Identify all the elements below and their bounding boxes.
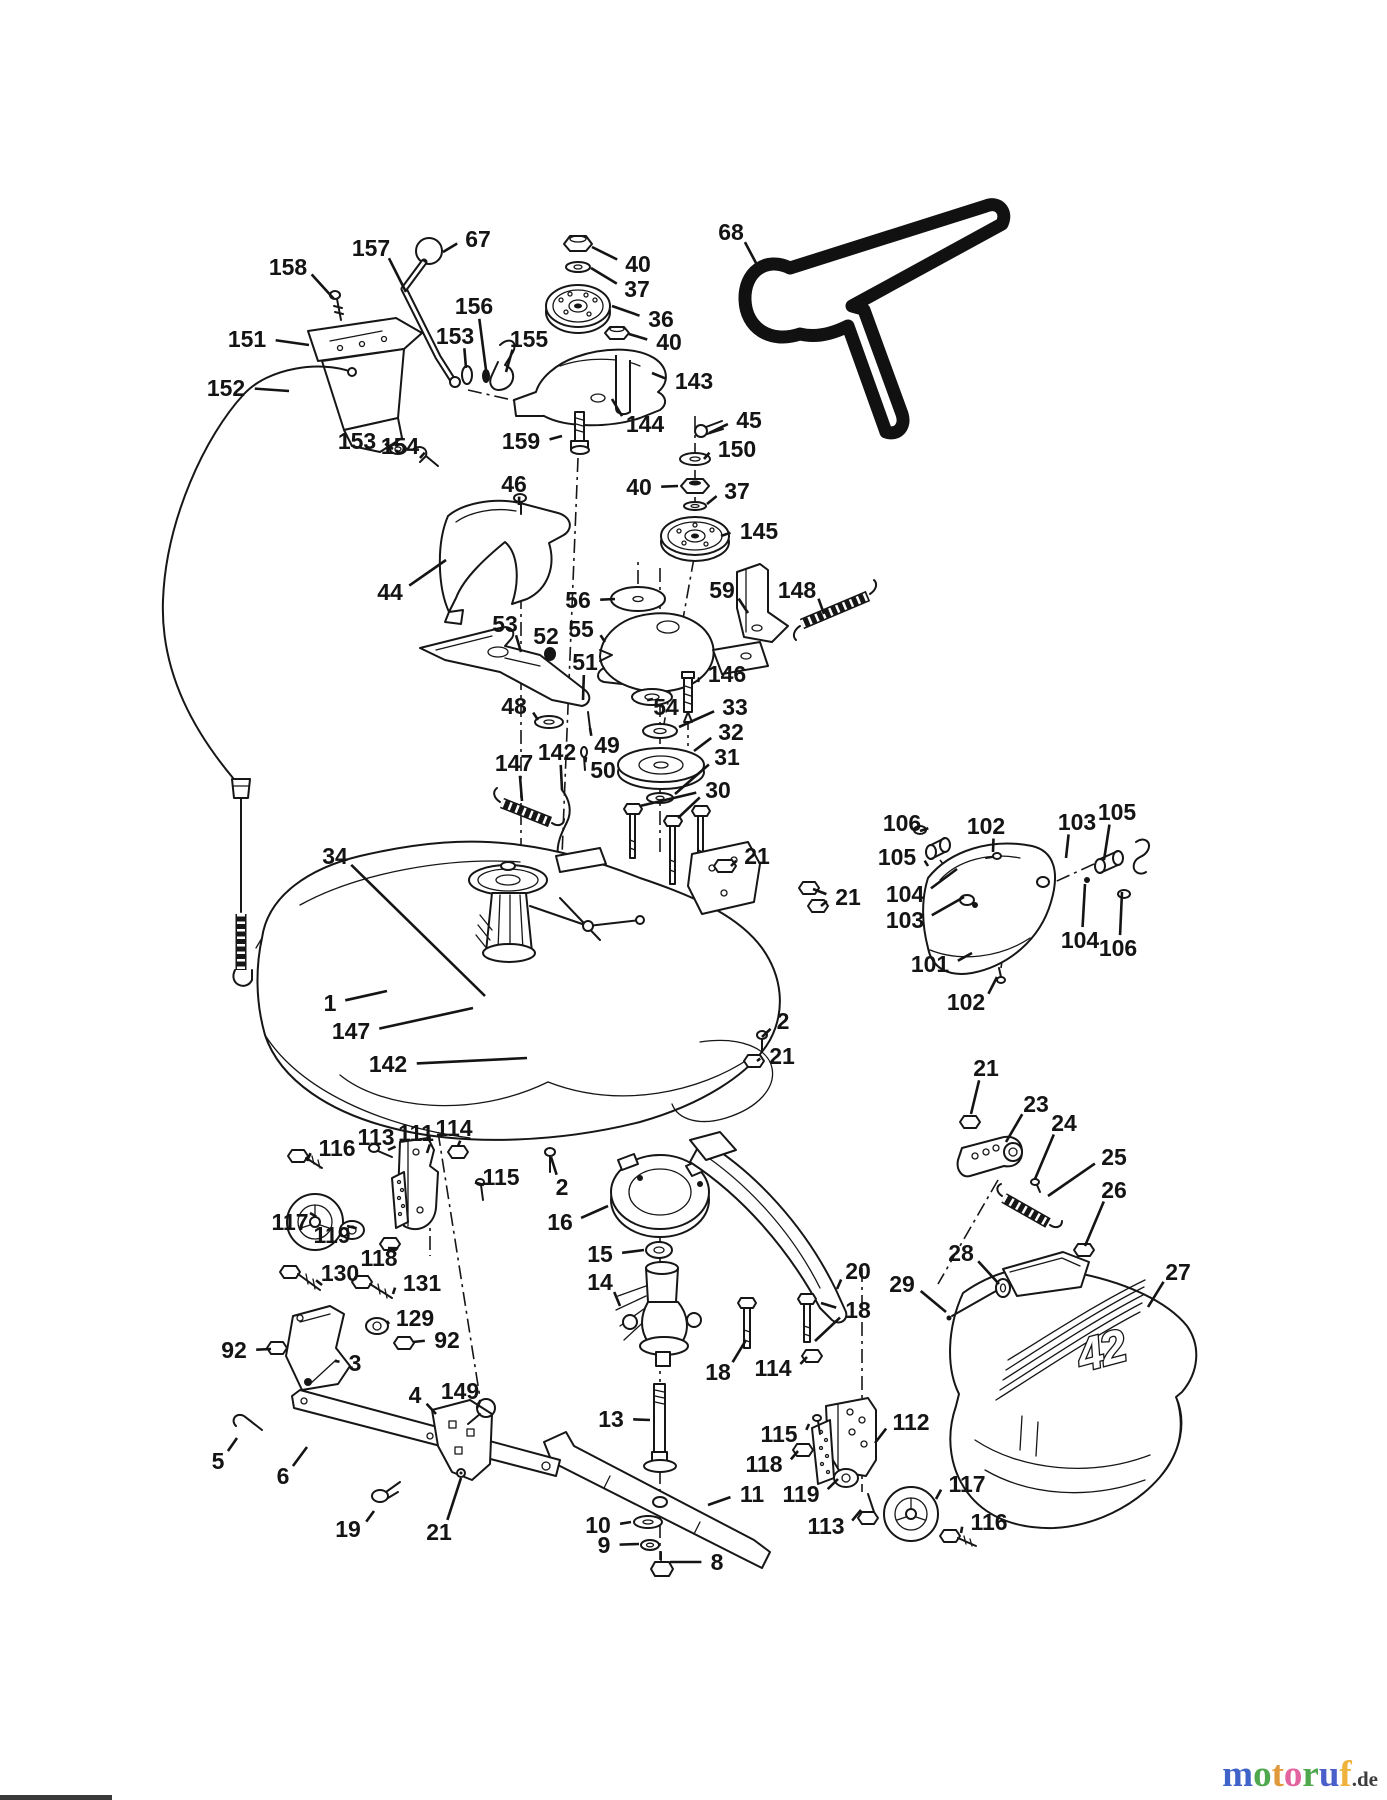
leader-line-50 xyxy=(585,757,586,762)
belt-cover-44 xyxy=(440,494,570,624)
part-label-1: 1 xyxy=(324,990,337,1016)
leader-line-5 xyxy=(228,1438,237,1451)
part-label-130: 130 xyxy=(321,1260,359,1286)
leader-line-56 xyxy=(600,599,615,600)
part-label-118: 118 xyxy=(360,1245,397,1271)
part-label-113: 113 xyxy=(357,1124,394,1150)
leader-line-20 xyxy=(837,1279,841,1289)
lever-knob xyxy=(416,238,442,264)
part-label-119: 119 xyxy=(313,1222,350,1248)
leader-line-129 xyxy=(387,1321,389,1324)
part-label-112: 112 xyxy=(892,1409,929,1435)
leader-line-49 xyxy=(590,728,591,736)
part-label-16: 16 xyxy=(547,1209,573,1235)
part-label-149: 149 xyxy=(441,1378,479,1404)
part-label-148: 148 xyxy=(778,577,817,603)
part-label-15: 15 xyxy=(587,1241,613,1267)
part-label-21: 21 xyxy=(744,843,770,869)
part-label-21: 21 xyxy=(835,884,861,910)
leader-line-103 xyxy=(1066,834,1069,858)
part-label-67: 67 xyxy=(465,226,491,252)
part-label-19: 19 xyxy=(335,1516,361,1542)
part-label-56: 56 xyxy=(565,587,591,613)
leader-line-153 xyxy=(464,348,466,368)
leader-line-151 xyxy=(276,340,309,345)
part-label-33: 33 xyxy=(722,694,748,720)
part-label-153: 153 xyxy=(338,428,376,454)
part-label-119: 119 xyxy=(782,1481,819,1507)
part-label-54: 54 xyxy=(653,694,679,720)
part-label-45: 45 xyxy=(736,407,762,433)
parts-diagram-page: 42 xyxy=(0,0,1387,1800)
leader-line-115 xyxy=(806,1424,809,1430)
part-label-21: 21 xyxy=(426,1519,452,1545)
part-label-115: 115 xyxy=(760,1421,797,1447)
leader-line-55 xyxy=(601,635,605,642)
leader-line-25 xyxy=(1048,1164,1095,1196)
part-label-21: 21 xyxy=(769,1043,795,1069)
leader-line-54 xyxy=(647,699,653,700)
leader-line-92 xyxy=(256,1349,271,1350)
part-label-2: 2 xyxy=(777,1008,790,1034)
drive-belt xyxy=(745,205,1004,433)
part-label-103: 103 xyxy=(1058,809,1096,835)
leader-line-21 xyxy=(971,1080,979,1114)
part-label-32: 32 xyxy=(718,719,744,745)
leader-line-156 xyxy=(479,319,486,370)
part-label-68: 68 xyxy=(718,219,744,245)
leader-line-51 xyxy=(583,675,584,700)
part-label-46: 46 xyxy=(501,471,527,497)
part-label-106: 106 xyxy=(1099,935,1137,961)
part-label-142: 142 xyxy=(369,1051,407,1077)
leader-line-159 xyxy=(550,436,562,439)
part-label-4: 4 xyxy=(409,1382,422,1408)
part-label-129: 129 xyxy=(396,1305,434,1331)
part-label-23: 23 xyxy=(1023,1091,1049,1117)
part-label-6: 6 xyxy=(277,1463,290,1489)
leader-line-29 xyxy=(921,1291,946,1312)
part-label-92: 92 xyxy=(221,1337,247,1363)
part-label-14: 14 xyxy=(587,1269,613,1295)
part-label-18: 18 xyxy=(845,1297,871,1323)
part-label-40: 40 xyxy=(625,251,651,277)
mandrel-and-blade-assembly xyxy=(544,1154,770,1576)
part-label-37: 37 xyxy=(624,276,650,302)
gauge-wheel-bracket-assembly xyxy=(958,1116,1094,1256)
part-label-24: 24 xyxy=(1051,1110,1077,1136)
part-label-25: 25 xyxy=(1101,1144,1127,1170)
part-label-37: 37 xyxy=(724,478,750,504)
part-label-21: 21 xyxy=(973,1055,999,1081)
part-label-18: 18 xyxy=(705,1359,731,1385)
leader-line-158 xyxy=(312,274,334,299)
leader-line-24 xyxy=(1035,1135,1054,1179)
leader-line-152 xyxy=(255,389,289,391)
part-label-147: 147 xyxy=(495,750,533,776)
part-label-53: 53 xyxy=(492,611,518,637)
leader-line-40 xyxy=(661,486,678,487)
part-label-59: 59 xyxy=(709,577,735,603)
part-label-106: 106 xyxy=(883,810,921,836)
leader-line-3 xyxy=(335,1361,339,1362)
part-label-34: 34 xyxy=(322,843,348,869)
leader-line-117 xyxy=(936,1490,941,1499)
leader-line-37 xyxy=(591,268,617,284)
part-label-20: 20 xyxy=(845,1258,871,1284)
part-label-117: 117 xyxy=(948,1471,985,1497)
part-label-147: 147 xyxy=(332,1018,370,1044)
leader-line-18 xyxy=(733,1340,746,1362)
part-label-55: 55 xyxy=(568,616,594,642)
leader-line-106 xyxy=(1120,892,1122,935)
part-label-104: 104 xyxy=(1061,927,1100,953)
part-label-154: 154 xyxy=(381,433,420,459)
part-label-115: 115 xyxy=(482,1164,519,1190)
leader-line-14 xyxy=(614,1292,620,1306)
part-label-51: 51 xyxy=(572,649,598,675)
part-label-40: 40 xyxy=(656,329,682,355)
leader-line-102 xyxy=(988,977,997,994)
leader-line-16 xyxy=(581,1206,608,1218)
leader-line-105 xyxy=(925,861,928,866)
leader-line-26 xyxy=(1085,1202,1104,1246)
leader-line-40 xyxy=(592,247,617,259)
part-label-30: 30 xyxy=(705,777,731,803)
part-label-5: 5 xyxy=(212,1448,225,1474)
part-label-3: 3 xyxy=(349,1350,362,1376)
part-label-105: 105 xyxy=(1098,799,1137,825)
leader-line-9 xyxy=(620,1544,639,1545)
leader-line-36 xyxy=(612,306,640,316)
leader-line-13 xyxy=(633,1419,650,1420)
part-label-29: 29 xyxy=(889,1271,915,1297)
part-label-116: 116 xyxy=(318,1135,355,1161)
part-label-103: 103 xyxy=(886,907,924,933)
leader-line-32 xyxy=(694,738,711,751)
part-label-150: 150 xyxy=(718,436,756,462)
part-label-52: 52 xyxy=(533,623,559,649)
leader-line-104 xyxy=(1083,884,1085,927)
leader-line-15 xyxy=(622,1250,644,1253)
leader-line-142 xyxy=(561,765,562,790)
leader-line-131 xyxy=(393,1288,395,1294)
part-label-157: 157 xyxy=(352,235,390,261)
part-label-13: 13 xyxy=(598,1406,624,1432)
leader-line-116 xyxy=(961,1527,962,1533)
mower-deck-exploded-diagram: 42 xyxy=(0,0,1387,1800)
leader-line-18 xyxy=(815,1318,840,1341)
part-label-92: 92 xyxy=(434,1327,460,1353)
part-label-146: 146 xyxy=(708,661,746,687)
part-label-102: 102 xyxy=(967,813,1005,839)
part-label-156: 156 xyxy=(455,293,493,319)
part-label-118: 118 xyxy=(745,1451,782,1477)
leader-line-37 xyxy=(707,496,717,504)
part-label-48: 48 xyxy=(501,693,527,719)
mower-deck-housing xyxy=(256,842,828,1172)
part-label-26: 26 xyxy=(1101,1177,1127,1203)
part-label-50: 50 xyxy=(590,757,616,783)
leader-line-6 xyxy=(293,1447,307,1466)
part-label-49: 49 xyxy=(594,732,620,758)
part-label-113: 113 xyxy=(807,1513,844,1539)
part-label-144: 144 xyxy=(626,411,665,437)
part-label-159: 159 xyxy=(502,428,540,454)
part-label-31: 31 xyxy=(714,744,740,770)
part-label-105: 105 xyxy=(878,844,917,870)
part-label-145: 145 xyxy=(740,518,779,544)
part-label-151: 151 xyxy=(228,326,267,352)
part-label-8: 8 xyxy=(711,1549,724,1575)
part-label-111: 111 xyxy=(398,1120,434,1146)
part-label-152: 152 xyxy=(207,375,245,401)
leader-line-21 xyxy=(447,1478,461,1520)
leader-line-67 xyxy=(443,244,457,252)
part-label-158: 158 xyxy=(269,254,308,280)
watermark-logo: motoruf.de xyxy=(1222,1754,1378,1795)
part-label-153: 153 xyxy=(436,323,474,349)
part-label-114: 114 xyxy=(754,1355,791,1381)
leader-line-11 xyxy=(708,1497,730,1505)
part-label-116: 116 xyxy=(970,1509,1007,1535)
part-label-9: 9 xyxy=(598,1532,611,1558)
part-label-114: 114 xyxy=(435,1115,472,1141)
part-label-117: 117 xyxy=(271,1209,308,1235)
part-label-11: 11 xyxy=(740,1481,765,1507)
leader-line-157 xyxy=(389,258,406,292)
part-label-143: 143 xyxy=(675,368,713,394)
leader-line-68 xyxy=(745,242,756,263)
part-label-142: 142 xyxy=(538,739,576,765)
leader-line-19 xyxy=(366,1511,374,1522)
part-label-28: 28 xyxy=(948,1240,974,1266)
leader-line-10 xyxy=(620,1522,631,1524)
part-label-101: 101 xyxy=(911,951,950,977)
part-label-155: 155 xyxy=(510,326,549,352)
scan-edge-artifact xyxy=(0,1795,112,1800)
part-label-44: 44 xyxy=(377,579,403,605)
leader-line-52 xyxy=(550,649,551,652)
part-label-27: 27 xyxy=(1165,1259,1191,1285)
part-label-2: 2 xyxy=(556,1174,569,1200)
leader-line-92 xyxy=(413,1341,425,1342)
part-label-104: 104 xyxy=(886,881,925,907)
part-label-40: 40 xyxy=(626,474,652,500)
part-label-131: 131 xyxy=(403,1270,442,1296)
leader-line-146 xyxy=(698,677,699,682)
leader-line-40 xyxy=(629,334,647,339)
part-label-102: 102 xyxy=(947,989,985,1015)
leader-line-2 xyxy=(551,1157,557,1175)
deflector-bracket-assembly xyxy=(690,1132,846,1362)
